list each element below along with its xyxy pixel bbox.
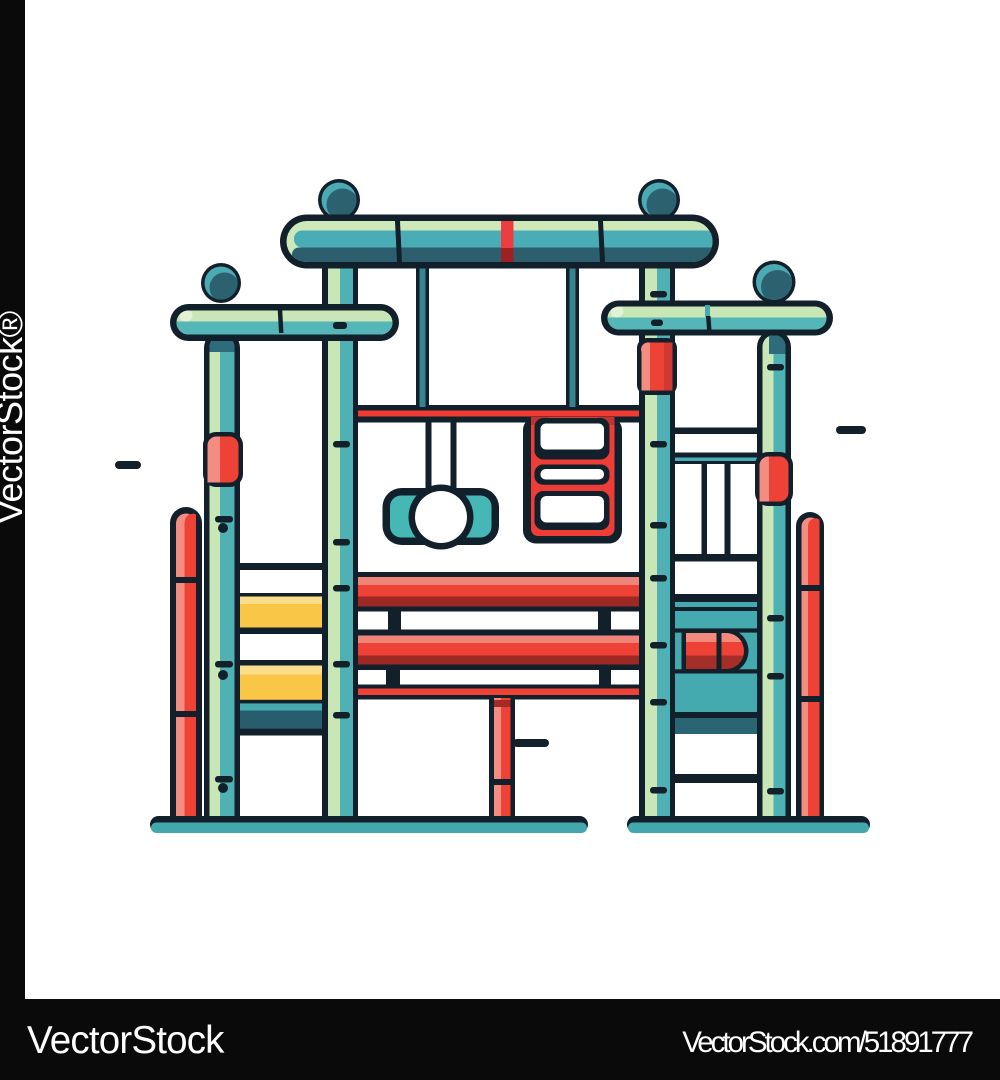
svg-text:VectorStock®: VectorStock® — [0, 311, 30, 524]
svg-text:VectorStock.com/51891777: VectorStock.com/51891777 — [682, 1026, 972, 1059]
svg-text:VectorStock: VectorStock — [27, 1019, 225, 1062]
